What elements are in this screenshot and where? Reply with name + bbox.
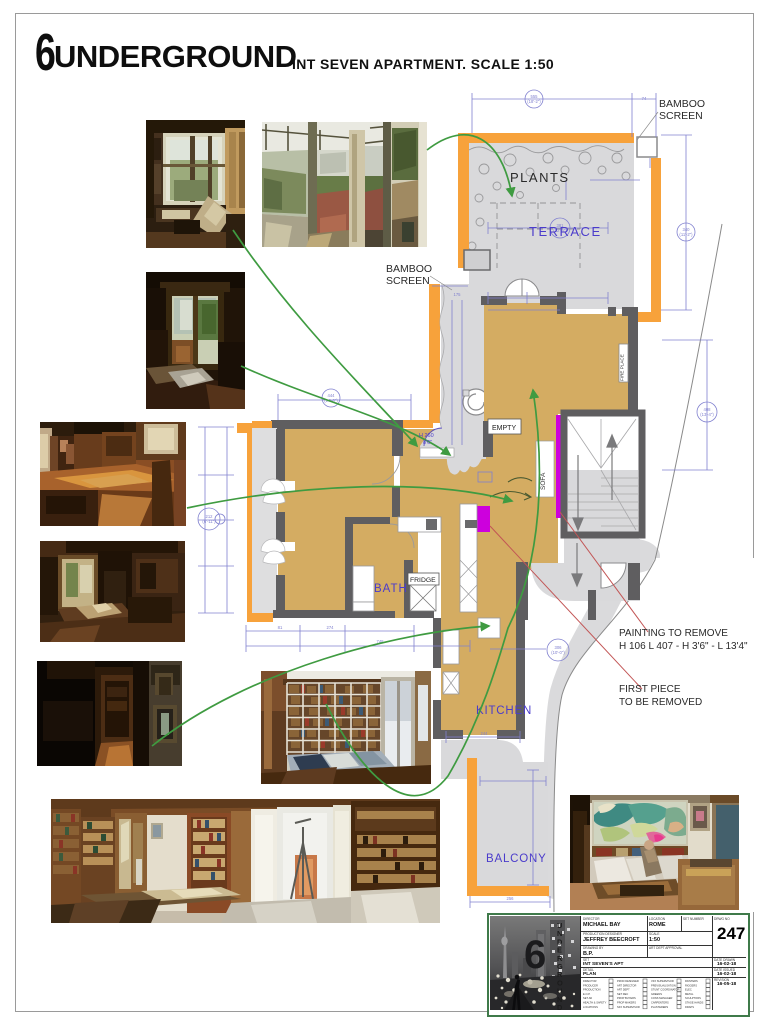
svg-text:DIRECTOR: DIRECTOR <box>583 979 597 983</box>
svg-text:SET AD: SET AD <box>583 996 592 1000</box>
svg-text:6: 6 <box>524 933 546 977</box>
svg-text:256: 256 <box>507 896 515 901</box>
svg-text:(11'-2"): (11'-2") <box>679 232 693 237</box>
svg-text:HEALTH & SAFETY: HEALTH & SAFETY <box>583 1001 607 1005</box>
svg-text:VFX SUPERVISOR: VFX SUPERVISOR <box>651 979 674 983</box>
svg-text:KITCHEN: KITCHEN <box>476 705 532 717</box>
svg-text:SFX SUPERVISOR: SFX SUPERVISOR <box>617 1005 640 1009</box>
svg-text:74: 74 <box>642 96 647 101</box>
svg-text:SET DEC: SET DEC <box>617 992 628 996</box>
svg-text:STUNT COORDINATOR: STUNT COORDINATOR <box>651 988 680 992</box>
svg-text:PLASTERERS: PLASTERERS <box>651 1005 668 1009</box>
svg-text:CONS MANAGER: CONS MANAGER <box>651 996 672 1000</box>
svg-text:METAL: METAL <box>685 992 694 996</box>
svg-text:PLANTS: PLANTS <box>510 170 570 185</box>
svg-text:PRODUCTION: PRODUCTION <box>583 988 601 992</box>
svg-text:H 260: H 260 <box>419 433 434 439</box>
svg-text:SOFA: SOFA <box>540 472 547 490</box>
svg-text:PAINTERS: PAINTERS <box>685 979 698 983</box>
svg-text:SCREEN: SCREEN <box>659 110 703 122</box>
svg-text:(18'-2"): (18'-2") <box>527 99 541 104</box>
svg-text:81: 81 <box>278 625 283 630</box>
svg-text:PRODUCER: PRODUCER <box>583 983 598 987</box>
svg-text:274: 274 <box>327 625 335 630</box>
svg-text:TO BE REMOVED: TO BE REMOVED <box>619 697 702 708</box>
svg-text:PREVISUALISATION: PREVISUALISATION <box>651 983 676 987</box>
svg-text:(10'-0"): (10'-0") <box>551 650 565 655</box>
svg-text:RIGGERS: RIGGERS <box>685 983 697 987</box>
svg-text:FIRST PIECE: FIRST PIECE <box>619 684 681 695</box>
svg-text:PAINTING TO REMOVE: PAINTING TO REMOVE <box>619 628 728 639</box>
svg-text:BALCONY: BALCONY <box>486 853 547 865</box>
svg-text:CARPENTERS: CARPENTERS <box>651 1001 669 1005</box>
svg-text:8'6": 8'6" <box>423 440 432 446</box>
svg-text:H 106 L 407 - H 3'6" - L 13'4": H 106 L 407 - H 3'6" - L 13'4" <box>619 641 748 652</box>
svg-text:FRIDGE: FRIDGE <box>410 577 436 584</box>
svg-text:LOCATIONS: LOCATIONS <box>583 1005 598 1009</box>
svg-text:PROP MAKERS: PROP MAKERS <box>617 1001 636 1005</box>
svg-text:BAMBOO: BAMBOO <box>386 263 432 275</box>
svg-text:175: 175 <box>454 292 462 297</box>
svg-text:ELEC: ELEC <box>685 988 692 992</box>
svg-text:(13'-4"): (13'-4") <box>700 412 714 417</box>
svg-text:SCREEN: SCREEN <box>386 275 430 287</box>
svg-text:EMPTY: EMPTY <box>492 425 516 432</box>
svg-text:TERRACE: TERRACE <box>529 224 602 239</box>
svg-text:SCULPTORS: SCULPTORS <box>685 996 701 1000</box>
svg-text:D: D <box>557 1003 563 1010</box>
svg-text:PROP BUYERS: PROP BUYERS <box>617 996 636 1000</box>
svg-text:GREENS: GREENS <box>651 992 662 996</box>
svg-text:(6'-11"): (6'-11") <box>202 519 216 524</box>
svg-text:DRAPS: DRAPS <box>685 1005 694 1009</box>
svg-text:E.O.P.: E.O.P. <box>583 992 591 996</box>
svg-text:FIRE PLACE: FIRE PLACE <box>620 354 625 381</box>
svg-text:244: 244 <box>481 731 489 736</box>
svg-text:ART DEPT: ART DEPT <box>617 988 630 992</box>
svg-text:PROD DESIGNER: PROD DESIGNER <box>617 979 639 983</box>
svg-text:BAMBOO: BAMBOO <box>659 98 705 110</box>
svg-text:BATH: BATH <box>374 583 408 595</box>
svg-text:STAGE HANDS: STAGE HANDS <box>685 1001 704 1005</box>
svg-text:ART DIRECTOR: ART DIRECTOR <box>617 983 636 987</box>
